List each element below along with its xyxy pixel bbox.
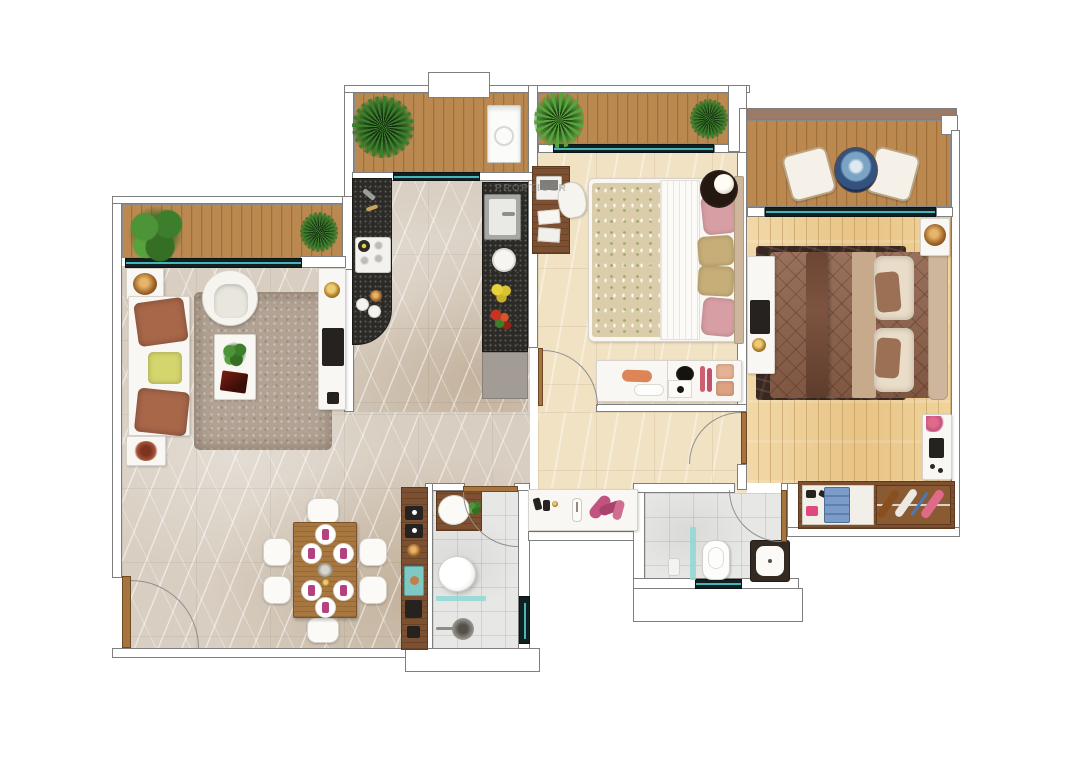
sofa-cushion-brown-top bbox=[133, 297, 189, 348]
master-door-leaf bbox=[741, 412, 747, 464]
wall-stub-master-sill-right bbox=[936, 207, 953, 217]
candle-box bbox=[405, 524, 423, 538]
dresser-tray-orange bbox=[622, 369, 652, 382]
bedroom2-fern-icon bbox=[690, 99, 728, 139]
hob-burner-active-icon bbox=[358, 240, 370, 252]
bedroom2-window-sill bbox=[553, 144, 714, 153]
dining-chair-right1 bbox=[359, 538, 387, 566]
sofa-pillow-yellow bbox=[148, 352, 182, 384]
potpourri-icon bbox=[134, 441, 158, 461]
kitchen-sink bbox=[484, 194, 521, 240]
bedroom2-headboard bbox=[734, 176, 744, 344]
wall-kitchen-sill-right bbox=[478, 172, 536, 181]
wardrobe-item-pink bbox=[806, 506, 818, 516]
vegetables-icon bbox=[487, 306, 515, 334]
entrance-door-leaf bbox=[122, 576, 131, 648]
decor-ball bbox=[407, 544, 421, 557]
gold-bowl-icon bbox=[324, 282, 340, 298]
pillow-pink bbox=[700, 297, 737, 338]
master-tv-icon bbox=[750, 300, 770, 334]
master-bed-throw bbox=[806, 252, 828, 398]
dresser-bottle-pink bbox=[707, 368, 712, 392]
bath1-toilet bbox=[438, 556, 476, 592]
mbath-basin bbox=[756, 546, 784, 576]
desk-papers bbox=[538, 227, 561, 243]
dresser-towel bbox=[716, 381, 734, 396]
wall-master-balcony-cap bbox=[747, 108, 957, 120]
hob-burner-icon bbox=[360, 256, 369, 265]
shower-drain-icon bbox=[452, 618, 474, 640]
place-setting bbox=[333, 543, 354, 564]
floor-plan: PROPTIGER bbox=[0, 0, 1086, 768]
dresser-towel bbox=[716, 364, 734, 379]
balcony-mosaic-table bbox=[834, 147, 878, 193]
place-setting bbox=[301, 543, 322, 564]
wall-top-left bbox=[112, 196, 350, 204]
shower-arm-icon bbox=[436, 627, 454, 630]
decor-box-small bbox=[407, 626, 420, 638]
bath1-shower-partition bbox=[436, 596, 486, 601]
utility-fern-icon bbox=[352, 96, 414, 158]
wall-under-balcony bbox=[300, 256, 346, 268]
coffee-table-plant-icon bbox=[221, 342, 249, 368]
kitchen-plate bbox=[368, 305, 381, 318]
dresser-pad bbox=[668, 380, 692, 398]
mbath-window-sill bbox=[695, 579, 742, 589]
dresser-device bbox=[929, 438, 944, 458]
master-window-sill bbox=[765, 207, 936, 217]
wall-shelf-bottom bbox=[528, 531, 645, 541]
dining-chair-left2 bbox=[263, 576, 291, 604]
wall-bedroom2-bottom bbox=[596, 404, 747, 412]
kitchen-window-sill bbox=[393, 172, 480, 181]
wall-bath1-ledge bbox=[405, 648, 540, 672]
master-bed-sheet-fold bbox=[852, 252, 876, 398]
bedroom2-duvet bbox=[592, 183, 664, 337]
utility-duct bbox=[428, 72, 490, 98]
vase-icon bbox=[572, 498, 582, 522]
dining-chair-right2 bbox=[359, 576, 387, 604]
table-gold-dish bbox=[322, 579, 330, 587]
desk-papers bbox=[537, 209, 560, 225]
master-gold-bowl-icon bbox=[752, 338, 766, 352]
hob-burner-icon bbox=[374, 254, 383, 263]
wardrobe-folded-clothes bbox=[824, 487, 850, 523]
mbath-shower-partition bbox=[690, 527, 696, 580]
living-tv-icon bbox=[322, 328, 344, 366]
bedroom2-runner bbox=[660, 180, 700, 340]
lemons-icon bbox=[490, 282, 514, 304]
wall-left bbox=[112, 196, 122, 578]
wardrobe-item-black bbox=[806, 490, 816, 498]
kitchen-cabinet bbox=[482, 352, 528, 399]
mbath-duct bbox=[633, 588, 803, 622]
dresser-tray-white bbox=[634, 384, 664, 396]
mbath-door-leaf bbox=[781, 490, 787, 542]
dresser-flowers-icon bbox=[926, 416, 944, 432]
washing-machine bbox=[487, 105, 521, 163]
wall-stub-master-door bbox=[737, 464, 747, 490]
dresser-dot bbox=[930, 464, 935, 469]
table-centerpiece bbox=[317, 563, 333, 577]
master-accent-pillow bbox=[874, 271, 901, 313]
sofa-cushion-brown-bottom bbox=[134, 387, 190, 436]
coffee-table-book bbox=[220, 370, 249, 393]
master-headboard bbox=[928, 248, 948, 400]
watermark: PROPTIGER bbox=[495, 183, 585, 197]
faucet-icon bbox=[502, 212, 515, 216]
place-setting bbox=[333, 580, 354, 601]
hob-burner-icon bbox=[374, 241, 383, 250]
console-decor bbox=[327, 392, 339, 404]
wall-right bbox=[951, 130, 960, 535]
living-balcony-plant-icon bbox=[126, 206, 188, 266]
place-setting bbox=[315, 597, 336, 618]
kitchen-plate bbox=[356, 298, 369, 311]
teal-candle-tray bbox=[404, 566, 424, 596]
wall-bottom bbox=[112, 648, 418, 658]
bedroom2-palm-icon bbox=[534, 92, 584, 148]
mbath-toilet bbox=[702, 540, 730, 580]
pillow-gold bbox=[697, 235, 735, 267]
dining-chair-bottom bbox=[307, 617, 339, 643]
wall-mbath-top bbox=[633, 483, 735, 493]
place-setting bbox=[315, 524, 336, 545]
mbath-bin bbox=[668, 558, 680, 576]
bath1-vent-window bbox=[519, 596, 530, 644]
kitchen-bowl bbox=[370, 290, 382, 302]
bedside-lamp-icon bbox=[714, 174, 734, 194]
candle-box bbox=[405, 506, 423, 520]
perfume-bottle-icon bbox=[543, 500, 550, 511]
kitchen-plate-large bbox=[492, 248, 516, 272]
dresser-bottle-pink bbox=[700, 366, 705, 392]
living-balcony-fern-icon bbox=[300, 212, 338, 252]
pillow-gold bbox=[697, 265, 735, 297]
dresser-dot bbox=[938, 468, 943, 473]
master-accent-pillow bbox=[875, 337, 902, 379]
dining-chair-top bbox=[307, 498, 339, 524]
nightstand-tray-icon bbox=[924, 224, 946, 246]
wood-bowl-icon bbox=[133, 273, 157, 295]
wall-stub-master-sill-left bbox=[747, 207, 765, 217]
dining-chair-left1 bbox=[263, 538, 291, 566]
decor-box bbox=[405, 600, 422, 618]
gold-knob-icon bbox=[552, 501, 558, 507]
armchair-seat bbox=[214, 284, 248, 318]
